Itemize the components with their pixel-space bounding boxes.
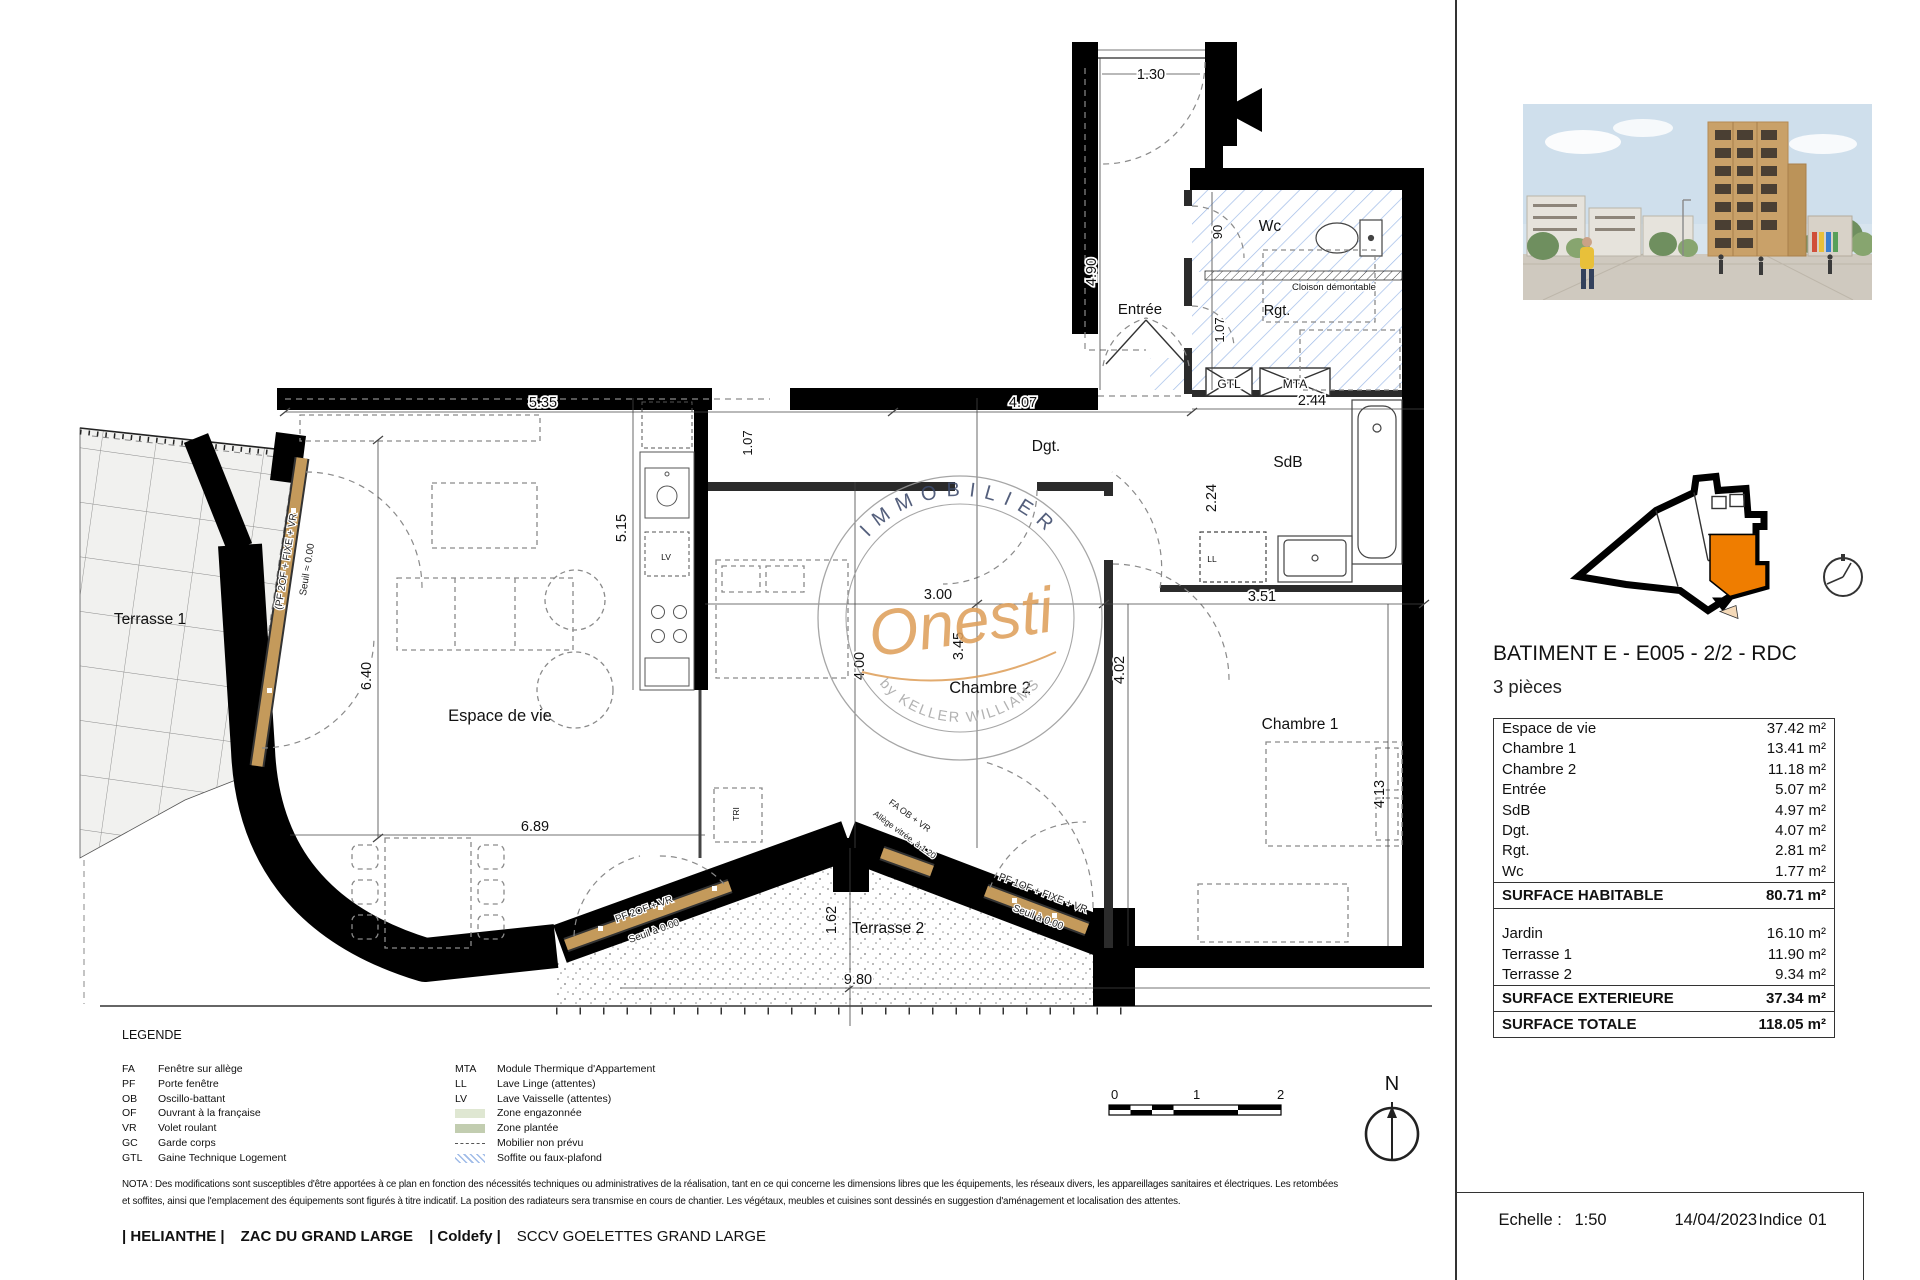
row-value: 5.07 m² (1775, 780, 1826, 800)
unit-subtitle: 3 pièces (1493, 676, 1793, 698)
zone-plantee-swatch (455, 1124, 485, 1133)
table-row: Terrasse 111.90 m² (1494, 945, 1834, 965)
dim: 6.40 (359, 662, 375, 690)
legend-label: Ouvrant à la française (158, 1106, 261, 1121)
room-label-entree: Entrée (1118, 301, 1162, 318)
row-label: Wc (1502, 862, 1524, 882)
row-value: 4.07 m² (1775, 821, 1826, 841)
row-label: SURFACE HABITABLE (1502, 883, 1663, 908)
indice-label: Indice (1759, 1211, 1803, 1230)
echelle-label: Echelle : (1499, 1211, 1562, 1230)
legend-label: Lave Linge (attentes) (497, 1077, 596, 1092)
legend-abbr: VR (122, 1121, 158, 1136)
graphic-scale-bar: 0 1 2 (1103, 1086, 1293, 1128)
legend-item: FAFenêtre sur allège (122, 1062, 452, 1077)
row-label: Rgt. (1502, 841, 1530, 861)
watermark: IMMOBILIER by KELLER WILLIAMS Onesti (818, 476, 1102, 760)
cloison-label: Cloison démontable (1292, 282, 1376, 293)
footer-sccv: SCCV GOELETTES GRAND LARGE (517, 1228, 766, 1245)
table-gap (1494, 909, 1834, 924)
dim: 6.89 (521, 819, 549, 835)
legend-item: LVLave Vaisselle (attentes) (455, 1092, 835, 1107)
scale-tick-2: 2 (1277, 1087, 1284, 1102)
legend-label: Mobilier non prévu (497, 1136, 583, 1151)
walls (196, 42, 1424, 1006)
footer-coldefy: | Coldefy | (429, 1228, 501, 1245)
legend-item: OFOuvrant à la française (122, 1106, 452, 1121)
legend-item: Zone engazonnée (455, 1106, 835, 1121)
table-row: SdB4.97 m² (1494, 801, 1834, 821)
legend-item: Soffite ou faux-plafond (455, 1151, 835, 1166)
row-value: 11.90 m² (1768, 945, 1826, 965)
dim: 2.44 (1298, 393, 1326, 409)
sheet-divider (1455, 0, 1457, 1280)
dim: 5.15 (614, 514, 630, 542)
row-value: 4.97 m² (1775, 801, 1826, 821)
zone-engazonnee-swatch (455, 1109, 485, 1118)
footer-zac: ZAC DU GRAND LARGE (241, 1228, 414, 1245)
nota-text: NOTA : Des modifications sont susceptibl… (122, 1176, 1452, 1210)
legend-abbr: LV (455, 1092, 497, 1107)
legend-item: OBOscillo-battant (122, 1092, 452, 1107)
room-label-espace: Espace de vie (448, 707, 552, 725)
table-row: Dgt.4.07 m² (1494, 821, 1834, 841)
surface-totale-row: SURFACE TOTALE118.05 m² (1494, 1011, 1834, 1037)
indice-value: 01 (1809, 1211, 1827, 1230)
opening-label: Seuil ≈ 0.00 (298, 542, 317, 596)
row-value: 16.10 m² (1767, 924, 1826, 944)
row-label: Terrasse 1 (1502, 945, 1572, 965)
row-label: Entrée (1502, 780, 1546, 800)
soffite-hatch-swatch (455, 1154, 485, 1163)
room-label-wc: Wc (1259, 218, 1282, 235)
legend-label: Module Thermique d'Appartement (497, 1062, 655, 1077)
row-value: 80.71 m² (1766, 883, 1826, 908)
dim: 1.30 (1137, 67, 1165, 83)
table-row: Chambre 211.18 m² (1494, 760, 1834, 780)
legend-item: VRVolet roulant (122, 1121, 452, 1136)
table-row: Espace de vie37.42 m² (1494, 719, 1834, 739)
nota-line-2: et soffites, ainsi que l'emplacement des… (122, 1193, 1452, 1210)
row-label: Dgt. (1502, 821, 1530, 841)
legend-left-column: FAFenêtre sur allège PFPorte fenêtre OBO… (122, 1062, 452, 1166)
dim: 4.13 (1372, 780, 1388, 808)
dim: 1.07 (1212, 317, 1227, 342)
legend-right-column: MTAModule Thermique d'Appartement LLLave… (455, 1062, 835, 1166)
ll-label: LL (1207, 554, 1217, 564)
row-label: Espace de vie (1502, 719, 1596, 739)
room-label-terrasse1: Terrasse 1 (114, 611, 186, 628)
floor-plan-sheet: Terrasse 1 Espace de vie Entrée Wc Rgt. … (0, 0, 1920, 1280)
mobilier-dash-swatch (455, 1143, 485, 1144)
legend-item: GCGarde corps (122, 1136, 452, 1151)
legend-label: Soffite ou faux-plafond (497, 1151, 602, 1166)
project-footer: | HELIANTHE |ZAC DU GRAND LARGE| Coldefy… (122, 1228, 766, 1245)
surface-habitable-row: SURFACE HABITABLE80.71 m² (1494, 882, 1834, 909)
title-block: Echelle : 1:50 14/04/2023 Indice 01 (1457, 1192, 1864, 1280)
legend-label: Porte fenêtre (158, 1077, 219, 1092)
room-label-sdb: SdB (1273, 454, 1302, 471)
footer-helianthe: | HELIANTHE | (122, 1228, 225, 1245)
north-indicator: N (1362, 1072, 1422, 1184)
cloison-demontable (1205, 271, 1402, 280)
legend-abbr: LL (455, 1077, 497, 1092)
row-label: Chambre 2 (1502, 760, 1576, 780)
floor-plan-drawing: Terrasse 1 Espace de vie Entrée Wc Rgt. … (0, 0, 1460, 1030)
scale-tick-1: 1 (1193, 1087, 1200, 1102)
legend-item: LLLave Linge (attentes) (455, 1077, 835, 1092)
row-label: Terrasse 2 (1502, 965, 1572, 985)
dim: 1.62 (824, 906, 840, 934)
nota-line-1: NOTA : Des modifications sont susceptibl… (122, 1176, 1452, 1193)
room-label-rgt: Rgt. (1264, 303, 1291, 319)
legend-label: Zone engazonnée (497, 1106, 582, 1121)
legend-title: LEGENDE (122, 1028, 182, 1042)
row-label: SURFACE TOTALE (1502, 1012, 1636, 1037)
table-row: Wc1.77 m² (1494, 862, 1834, 882)
legend-abbr: OF (122, 1106, 158, 1121)
dim: 4.90 (1084, 258, 1100, 286)
table-row: Rgt.2.81 m² (1494, 841, 1834, 861)
legend-label: Zone plantée (497, 1121, 558, 1136)
row-value: 13.41 m² (1767, 739, 1826, 759)
table-row: Chambre 113.41 m² (1494, 739, 1834, 759)
dim: 9.80 (844, 972, 872, 988)
building-photo (1523, 104, 1872, 300)
key-plan (1560, 468, 1830, 654)
row-value: 37.42 m² (1767, 719, 1826, 739)
surface-table: Espace de vie37.42 m² Chambre 113.41 m² … (1493, 718, 1835, 1038)
room-label-chambre1: Chambre 1 (1262, 716, 1339, 733)
legend-label: Lave Vaisselle (attentes) (497, 1092, 611, 1107)
legend-item: Zone plantée (455, 1121, 835, 1136)
row-value: 11.18 m² (1768, 760, 1826, 780)
dim: 3.51 (1248, 589, 1276, 605)
date-value: 14/04/2023 (1675, 1211, 1758, 1230)
echelle-value: 1:50 (1575, 1211, 1607, 1230)
room-label-dgt: Dgt. (1032, 438, 1060, 455)
kitchen (640, 402, 694, 690)
gtl-label: GTL (1217, 377, 1241, 391)
table-row: Entrée5.07 m² (1494, 780, 1834, 800)
row-label: SdB (1502, 801, 1530, 821)
row-value: 37.34 m² (1766, 986, 1826, 1011)
unit-title: BATIMENT E - E005 - 2/2 - RDC (1493, 642, 1893, 666)
legend-abbr: GTL (122, 1151, 158, 1166)
row-value: 2.81 m² (1775, 841, 1826, 861)
mta-label: MTA (1283, 377, 1307, 391)
dim: 4.02 (1112, 656, 1128, 684)
room-label-terrasse2: Terrasse 2 (852, 920, 924, 937)
watermark-script: Onesti (864, 573, 1059, 670)
legend-item: PFPorte fenêtre (122, 1077, 452, 1092)
legend-label: Volet roulant (158, 1121, 216, 1136)
row-label: SURFACE EXTERIEURE (1502, 986, 1674, 1011)
lv-label: LV (661, 552, 671, 562)
legend-abbr: PF (122, 1077, 158, 1092)
orientation-dial-icon (1819, 553, 1867, 601)
legend-label: Gaine Technique Logement (158, 1151, 286, 1166)
tri-label: TRI (731, 807, 741, 821)
legend-abbr: GC (122, 1136, 158, 1151)
legend-abbr: FA (122, 1062, 158, 1077)
table-row: Terrasse 29.34 m² (1494, 965, 1834, 985)
legend-label: Garde corps (158, 1136, 216, 1151)
row-value: 1.77 m² (1775, 862, 1826, 882)
dim: 4.07 (1009, 395, 1037, 411)
row-label: Jardin (1502, 924, 1543, 944)
legend-label: Fenêtre sur allège (158, 1062, 243, 1077)
legend-item: Mobilier non prévu (455, 1136, 835, 1151)
dim: 4.00 (852, 652, 868, 680)
dim: 5.35 (529, 395, 557, 411)
legend-item: MTAModule Thermique d'Appartement (455, 1062, 835, 1077)
entry-door-leaves (1106, 320, 1186, 364)
surface-exterieure-row: SURFACE EXTERIEURE37.34 m² (1494, 985, 1834, 1011)
row-value: 9.34 m² (1775, 965, 1826, 985)
legend-abbr: OB (122, 1092, 158, 1107)
legend-abbr: MTA (455, 1062, 497, 1077)
legend-label: Oscillo-battant (158, 1092, 225, 1107)
scale-tick-0: 0 (1111, 1087, 1118, 1102)
row-value: 118.05 m² (1758, 1012, 1826, 1037)
legend-item: GTLGaine Technique Logement (122, 1151, 452, 1166)
dim: 1.07 (740, 430, 755, 455)
dim: 90 (1210, 225, 1225, 239)
north-label: N (1385, 1073, 1399, 1095)
dim: 2.24 (1204, 484, 1220, 512)
table-row: Jardin16.10 m² (1494, 924, 1834, 944)
row-label: Chambre 1 (1502, 739, 1576, 759)
